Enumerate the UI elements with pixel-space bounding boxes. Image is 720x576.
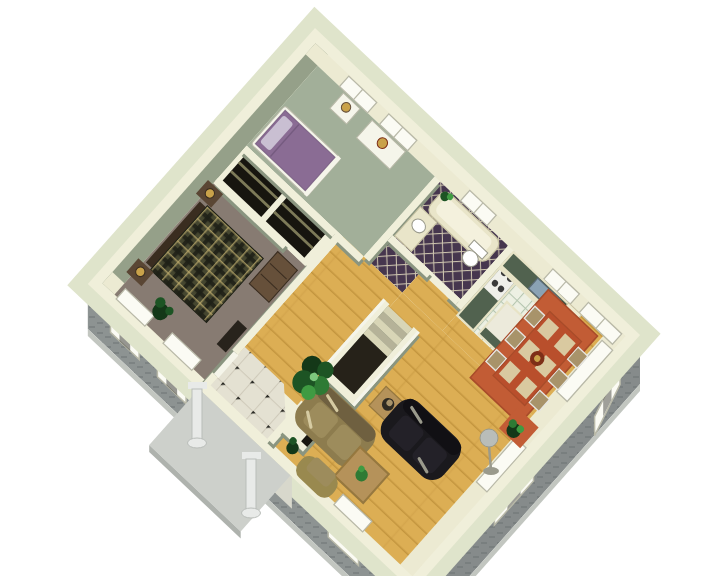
floor-lamp-shade xyxy=(480,429,498,447)
floorplan-render xyxy=(0,0,720,576)
plan-group xyxy=(67,7,660,576)
floorplan-svg xyxy=(0,0,720,576)
